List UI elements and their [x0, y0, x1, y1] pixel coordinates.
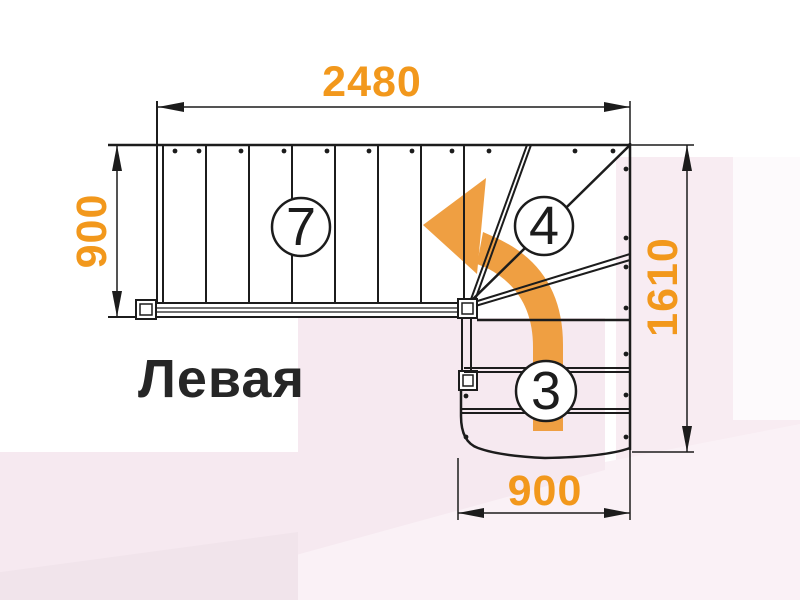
upper-flight-step-count: 7: [271, 204, 331, 250]
stringer-band: [108, 299, 477, 319]
dimension-bottom-label: 900: [445, 467, 645, 516]
dimension-left-label: 900: [69, 166, 115, 296]
dimension-top-label: 2480: [272, 58, 472, 107]
dimension-top-2480: [158, 101, 630, 143]
winder-step-count: 4: [514, 203, 574, 249]
lower-flight-step-count: 3: [516, 368, 576, 414]
railing-vertical: [459, 318, 477, 390]
dimension-lines: [112, 101, 694, 520]
stair-variant-title: Левая: [138, 348, 305, 410]
stair-plan-page: 2480 900 1610 900 7 4 3 Левая: [0, 0, 800, 600]
dimension-right-label: 1610: [640, 217, 686, 357]
direction-arrow-head: [423, 178, 486, 274]
